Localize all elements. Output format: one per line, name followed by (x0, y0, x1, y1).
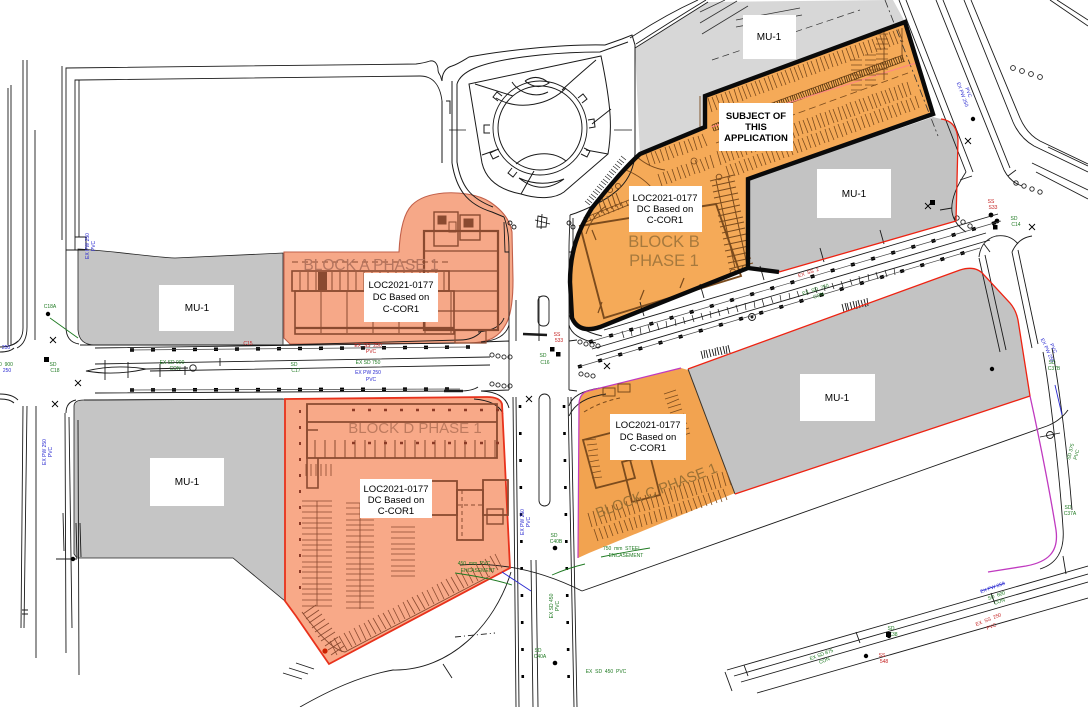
svg-text:ENCASEMENT: ENCASEMENT (461, 568, 496, 574)
svg-text:250: 250 (3, 368, 12, 374)
svg-text:548: 548 (880, 659, 889, 665)
svg-text:C37A: C37A (1064, 511, 1077, 517)
svg-text:C40A: C40A (534, 654, 547, 660)
svg-text:APPLICATION: APPLICATION (724, 133, 788, 144)
svg-text:BLOCK B: BLOCK B (628, 233, 700, 251)
svg-text:EX SD 450 PVC: EX SD 450 PVC (586, 669, 627, 675)
svg-text:DC Based on: DC Based on (373, 292, 430, 303)
svg-text:PVC: PVC (91, 240, 97, 251)
svg-text:C-COR1: C-COR1 (383, 304, 419, 315)
svg-text:533: 533 (555, 338, 564, 344)
svg-text:DC Based on: DC Based on (637, 204, 694, 215)
svg-text:SUBJECT OF: SUBJECT OF (726, 111, 786, 122)
svg-text:LOC2021-0177: LOC2021-0177 (369, 280, 434, 291)
svg-text:C37B: C37B (1048, 366, 1061, 372)
svg-text:MU-1: MU-1 (757, 32, 782, 43)
svg-text:S33: S33 (989, 205, 998, 211)
svg-text:DC Based on: DC Based on (368, 495, 425, 506)
svg-text:SD: SD (540, 353, 547, 359)
svg-text:C-COR1: C-COR1 (378, 506, 414, 517)
svg-text:BLOCK A PHASE 1: BLOCK A PHASE 1 (303, 257, 438, 274)
svg-text:EX SD 750: EX SD 750 (356, 360, 381, 366)
svg-text:DC Based on: DC Based on (620, 432, 677, 443)
svg-text:PVC: PVC (366, 349, 377, 355)
svg-text:250: 250 (2, 345, 11, 351)
svg-text:PVC: PVC (555, 600, 561, 611)
svg-text:C18: C18 (50, 368, 59, 374)
svg-text:MU-1: MU-1 (842, 189, 867, 200)
svg-text:C-COR1: C-COR1 (647, 215, 683, 226)
svg-text:MU-1: MU-1 (825, 393, 850, 404)
svg-text:MU-1: MU-1 (185, 303, 210, 314)
svg-text:750 mm STEEL: 750 mm STEEL (603, 546, 641, 552)
svg-text:LOC2021-0177: LOC2021-0177 (633, 193, 698, 204)
svg-text:PVC: PVC (48, 446, 54, 457)
svg-text:C17: C17 (291, 368, 300, 374)
svg-text:C16: C16 (540, 360, 549, 366)
svg-text:0 900: 0 900 (0, 362, 13, 368)
svg-text:C-COR1: C-COR1 (630, 443, 666, 454)
svg-text:PVC: PVC (366, 377, 377, 383)
svg-text:THIS: THIS (745, 122, 767, 133)
svg-text:C40B: C40B (550, 539, 563, 545)
svg-text:ENCASEMENT: ENCASEMENT (609, 553, 644, 559)
svg-text:MU-1: MU-1 (175, 477, 200, 488)
svg-text:LOC2021-0177: LOC2021-0177 (364, 484, 429, 495)
svg-text:C14: C14 (1011, 222, 1020, 228)
svg-text:C18A: C18A (44, 304, 57, 310)
svg-text:PHASE 1: PHASE 1 (629, 252, 699, 270)
svg-text:PVC: PVC (526, 516, 532, 527)
svg-text:EX PW 250: EX PW 250 (355, 370, 381, 376)
svg-text:LOC2021-0177: LOC2021-0177 (616, 420, 681, 431)
svg-text:450 mm PVC: 450 mm PVC (458, 561, 491, 567)
svg-text:BLOCK D PHASE 1: BLOCK D PHASE 1 (348, 420, 481, 437)
svg-text:CON: CON (169, 366, 181, 372)
svg-text:C15: C15 (243, 341, 252, 347)
